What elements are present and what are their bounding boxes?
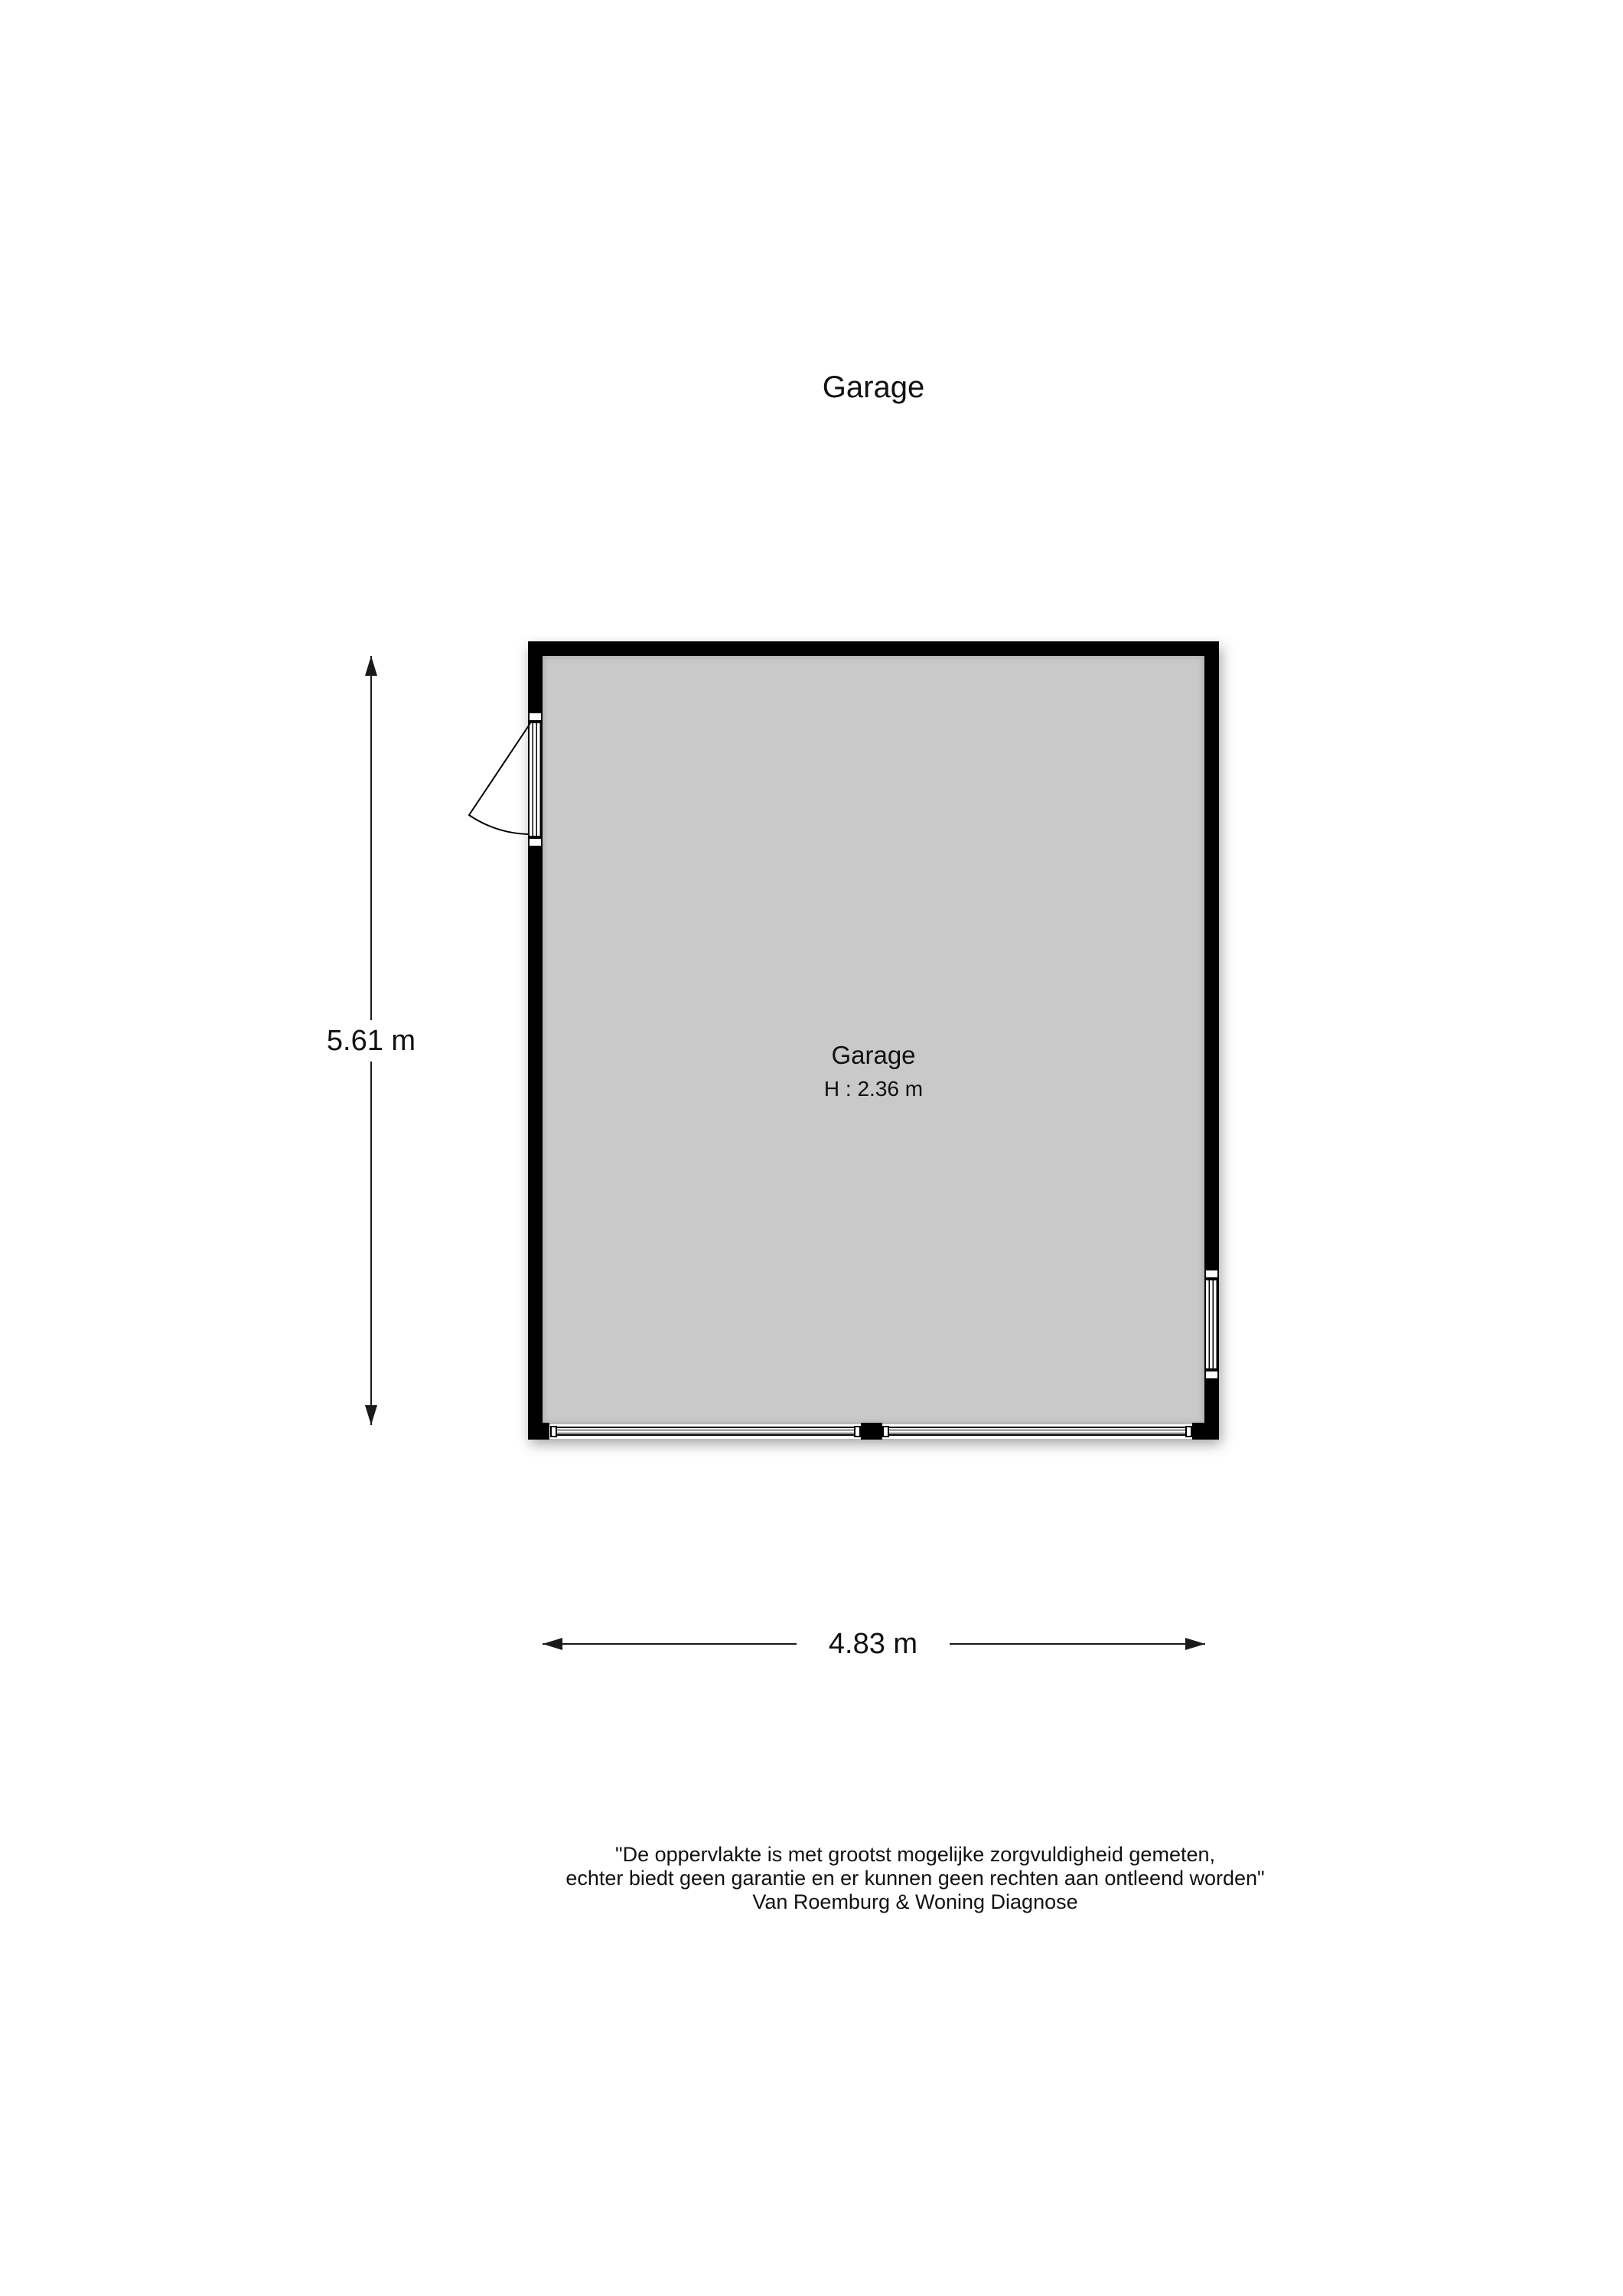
garage-door-jamb — [550, 1426, 557, 1437]
corner-pillar-left — [528, 1423, 549, 1440]
arrow-left-icon — [543, 1638, 562, 1650]
disclaimer-line-1: "De oppervlakte is met grootst mogelijke… — [533, 1843, 1298, 1867]
room-label: Garage — [543, 1041, 1204, 1070]
garage-door-jamb — [882, 1426, 889, 1437]
arrow-right-icon — [1185, 1638, 1205, 1650]
garage-door-jamb — [854, 1426, 861, 1437]
floorplan-page: Garage Garage H : 2.36 m 5.61 m 4.83 m "… — [0, 0, 1623, 2296]
room-height-label: H : 2.36 m — [543, 1077, 1204, 1101]
room-floor — [543, 656, 1204, 1424]
window-jamb-bottom — [1204, 1370, 1219, 1380]
disclaimer: "De oppervlakte is met grootst mogelijke… — [533, 1843, 1298, 1914]
floor-plan: Garage H : 2.36 m — [528, 641, 1219, 1439]
disclaimer-line-2: echter biedt geen garantie en er kunnen … — [533, 1867, 1298, 1890]
center-pillar — [861, 1423, 882, 1440]
garage-door-right — [889, 1427, 1185, 1436]
page-title: Garage — [528, 370, 1219, 404]
door-swing-icon — [459, 718, 532, 840]
garage-door-left — [557, 1427, 854, 1436]
window-panel — [1204, 1279, 1219, 1370]
window-jamb-top — [1204, 1269, 1219, 1279]
vertical-dimension-label: 5.61 m — [318, 1020, 425, 1062]
garage-door-jamb — [1185, 1426, 1192, 1437]
horizontal-dimension-label: 4.83 m — [797, 1623, 950, 1665]
corner-pillar-right — [1192, 1423, 1219, 1440]
arrow-up-icon — [365, 656, 377, 676]
disclaimer-line-3: Van Roemburg & Woning Diagnose — [533, 1890, 1298, 1914]
arrow-down-icon — [365, 1405, 377, 1425]
